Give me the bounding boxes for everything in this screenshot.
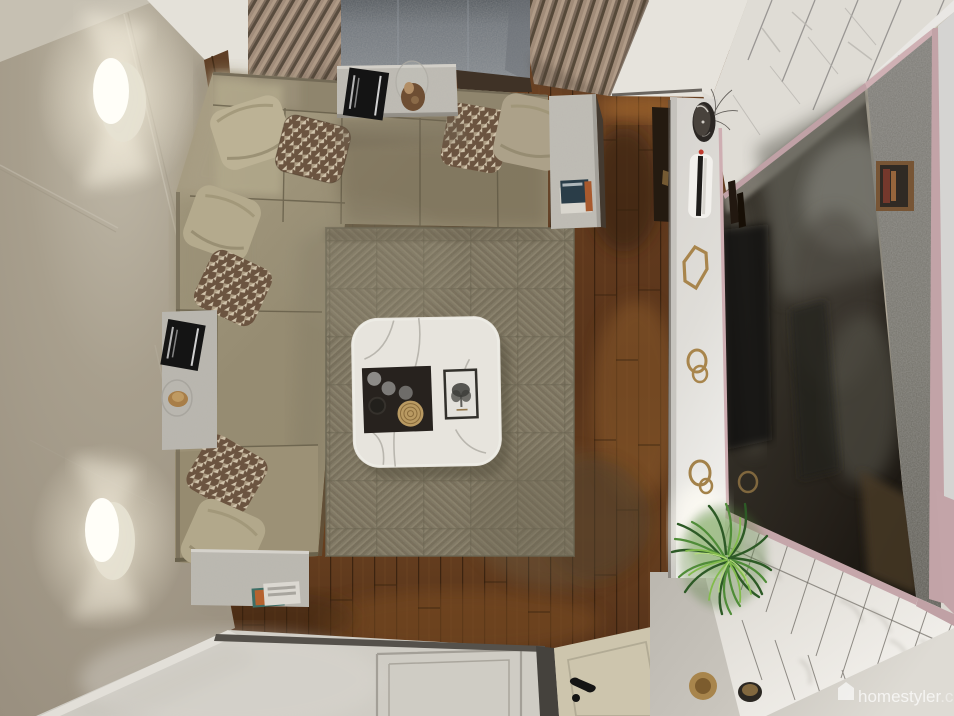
svg-text:homestyler.com: homestyler.com (858, 687, 954, 706)
